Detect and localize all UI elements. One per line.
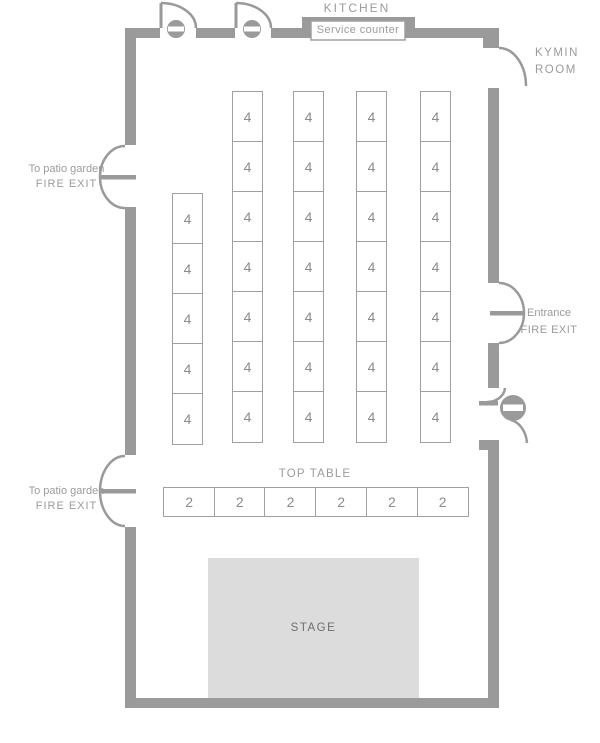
table-4-seat: 4 [232, 391, 263, 443]
table-4-seat: 4 [356, 391, 387, 443]
table-4-seat: 4 [293, 141, 324, 193]
wall-left-2 [125, 207, 136, 455]
table-4-seat: 4 [232, 291, 263, 343]
table-4-seat: 4 [356, 191, 387, 243]
table-4-seat: 4 [356, 241, 387, 293]
table-4-seat: 4 [232, 141, 263, 193]
table-4-seat: 4 [172, 193, 203, 245]
top-table-label: TOP TABLE [163, 468, 467, 480]
table-4-seat: 4 [420, 241, 451, 293]
table-4-seat: 4 [356, 341, 387, 393]
fire-exit-text: FIRE EXIT [18, 177, 115, 192]
kitchen-label: KITCHEN [287, 0, 427, 17]
wall-top-4 [415, 28, 499, 38]
table-4-seat: 4 [420, 91, 451, 143]
door-sign-bar [168, 27, 184, 32]
table-4-seat: 4 [172, 343, 203, 395]
room-name-line2: ROOM [535, 62, 595, 79]
fire-exit-text: FIRE EXIT [516, 322, 582, 339]
wall-right-3 [488, 440, 499, 698]
service-counter-label: Service counter [311, 21, 405, 40]
wall-left-1 [125, 28, 136, 145]
table-4-seat: 4 [420, 191, 451, 243]
table-2-seat: 2 [264, 487, 316, 517]
fire-exit-destination: To patio garden [18, 484, 115, 499]
side-door-arc-bottom [511, 420, 527, 443]
stage-label: STAGE [291, 622, 337, 634]
floor-plan: KITCHEN Service counter KYMIN ROOM To pa… [0, 0, 600, 743]
table-4-seat: 4 [293, 291, 324, 343]
room-name-line1: KYMIN [535, 45, 595, 62]
table-4-seat: 4 [172, 393, 203, 445]
kymin-room-door-arc [499, 48, 526, 86]
table-4-seat: 4 [356, 91, 387, 143]
table-4-seat: 4 [420, 141, 451, 193]
table-4-seat: 4 [293, 391, 324, 443]
table-4-seat: 4 [232, 341, 263, 393]
table-4-seat: 4 [356, 141, 387, 193]
fire-exit-destination: To patio garden [18, 162, 115, 177]
wall-top-right-jamb [483, 38, 499, 48]
table-4-seat: 4 [172, 293, 203, 345]
fire-exit-label-2: To patio garden FIRE EXIT [18, 484, 115, 514]
table-4-seat: 4 [293, 191, 324, 243]
table-2-seat: 2 [163, 487, 215, 517]
table-2-seat: 2 [366, 487, 418, 517]
fire-exit-text: FIRE EXIT [18, 499, 115, 514]
table-4-seat: 4 [172, 243, 203, 295]
wall-top-2 [196, 28, 235, 38]
table-4-seat: 4 [293, 241, 324, 293]
table-2-seat: 2 [315, 487, 367, 517]
room-name-label: KYMIN ROOM [535, 45, 595, 79]
table-4-seat: 4 [420, 291, 451, 343]
door-sign-bar [244, 27, 260, 32]
table-2-seat: 2 [417, 487, 469, 517]
entrance-label: Entrance FIRE EXIT [516, 305, 582, 338]
table-4-seat: 4 [293, 91, 324, 143]
side-door-arc-top [487, 388, 505, 402]
wall-top-3 [271, 28, 302, 38]
table-4-seat: 4 [232, 191, 263, 243]
door-sign-bar [503, 405, 523, 412]
wall-right-2 [488, 343, 499, 388]
table-4-seat: 4 [420, 391, 451, 443]
fire-exit-label-1: To patio garden FIRE EXIT [18, 162, 115, 192]
table-4-seat: 4 [293, 341, 324, 393]
stage: STAGE [208, 558, 419, 698]
table-4-seat: 4 [420, 341, 451, 393]
door-signs [167, 20, 526, 421]
wall-bottom [125, 698, 499, 708]
table-4-seat: 4 [232, 241, 263, 293]
entrance-text: Entrance [516, 305, 582, 322]
wall-left-3 [125, 527, 136, 698]
table-4-seat: 4 [356, 291, 387, 343]
table-2-seat: 2 [214, 487, 266, 517]
wall-right-1 [488, 88, 499, 283]
table-4-seat: 4 [232, 91, 263, 143]
